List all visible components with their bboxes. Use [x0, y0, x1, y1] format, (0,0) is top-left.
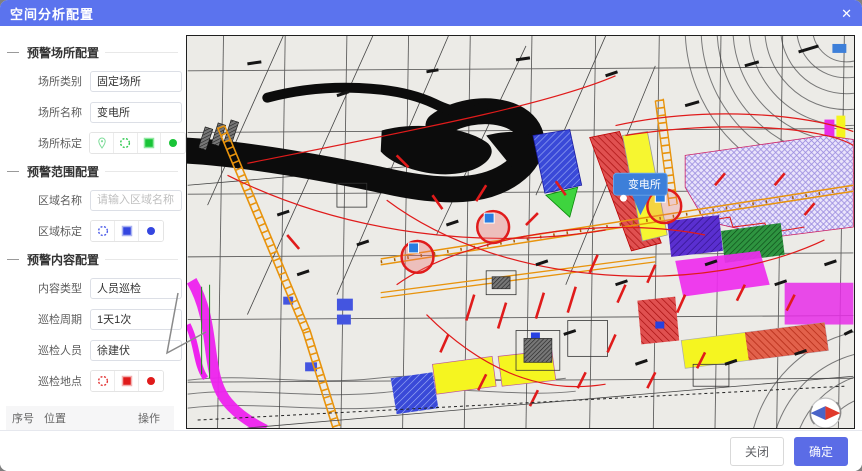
compass-icon[interactable]: [810, 398, 840, 428]
content-type-label: 内容类型: [38, 280, 90, 296]
place-mark-label: 场所标定: [38, 135, 89, 151]
dashed-circle-icon[interactable]: [91, 221, 115, 241]
config-sidebar: 预警场所配置 场所类别 场所名称 场所标定: [0, 26, 186, 430]
field-region-mark: 区域标定: [38, 220, 186, 242]
place-mark-icon-group: [89, 132, 186, 154]
region-mark-label: 区域标定: [38, 223, 90, 239]
section-place-title: 预警场所配置: [27, 44, 99, 61]
dashed-circle-icon[interactable]: [91, 371, 115, 391]
spatial-analysis-dialog: 空间分析配置 ✕ 预警场所配置 场所类别 场所名称 场所标定: [0, 0, 862, 471]
close-button[interactable]: 关闭: [730, 437, 784, 466]
filled-circle-icon[interactable]: [161, 133, 185, 153]
section-content-title: 预警内容配置: [27, 251, 99, 268]
section-place: 预警场所配置: [0, 44, 186, 61]
section-content: 预警内容配置: [0, 251, 186, 268]
place-name-input[interactable]: [90, 102, 182, 123]
dialog-footer: 关闭 确定: [0, 430, 862, 471]
filled-circle-icon[interactable]: [139, 221, 163, 241]
table-header: 序号 位置 操作: [6, 406, 174, 430]
field-region-name: 区域名称: [38, 189, 186, 211]
field-patrol-spot: 巡检地点: [38, 370, 186, 392]
filled-circle-icon[interactable]: [139, 371, 163, 391]
close-icon[interactable]: ✕: [841, 7, 852, 20]
col-act-header: 操作: [124, 410, 174, 426]
place-type-label: 场所类别: [38, 73, 90, 89]
patrol-cycle-input[interactable]: [90, 309, 182, 330]
region-name-input[interactable]: [90, 190, 182, 211]
section-region: 预警范围配置: [0, 163, 186, 180]
patrol-spot-label: 巡检地点: [38, 373, 90, 389]
site-map-canvas[interactable]: 变电所: [186, 35, 855, 429]
filled-square-icon[interactable]: [138, 133, 162, 153]
pin-icon[interactable]: [90, 133, 114, 153]
patrol-person-label: 巡检人员: [38, 342, 90, 358]
dashed-circle-icon[interactable]: [114, 133, 138, 153]
patrol-spot-icon-group: [90, 370, 164, 392]
dialog-title: 空间分析配置: [10, 4, 94, 23]
region-name-label: 区域名称: [38, 192, 90, 208]
field-place-type: 场所类别: [38, 70, 186, 92]
field-content-type: 内容类型: [38, 277, 186, 299]
col-no-header: 序号: [6, 410, 40, 426]
field-place-name: 场所名称: [38, 101, 186, 123]
place-name-label: 场所名称: [38, 104, 90, 120]
dialog-header: 空间分析配置 ✕: [0, 0, 862, 26]
substation-marker-label: 变电所: [628, 177, 661, 191]
col-pos-header: 位置: [40, 410, 124, 426]
patrol-cycle-label: 巡检周期: [38, 311, 90, 327]
patrol-spot-table: 序号 位置 操作 1 删除 2 删除 3 删除: [6, 406, 174, 430]
confirm-button[interactable]: 确定: [794, 437, 848, 466]
filled-square-icon[interactable]: [115, 371, 139, 391]
content-type-input[interactable]: [90, 278, 182, 299]
cad-drawing: 变电所: [187, 36, 854, 428]
filled-square-icon[interactable]: [115, 221, 139, 241]
region-mark-icon-group: [90, 220, 164, 242]
section-region-title: 预警范围配置: [27, 163, 99, 180]
place-type-input[interactable]: [90, 71, 182, 92]
patrol-person-input[interactable]: [90, 340, 182, 361]
field-patrol-person: 巡检人员: [38, 339, 186, 361]
field-patrol-cycle: 巡检周期: [38, 308, 186, 330]
field-place-mark: 场所标定: [38, 132, 186, 154]
